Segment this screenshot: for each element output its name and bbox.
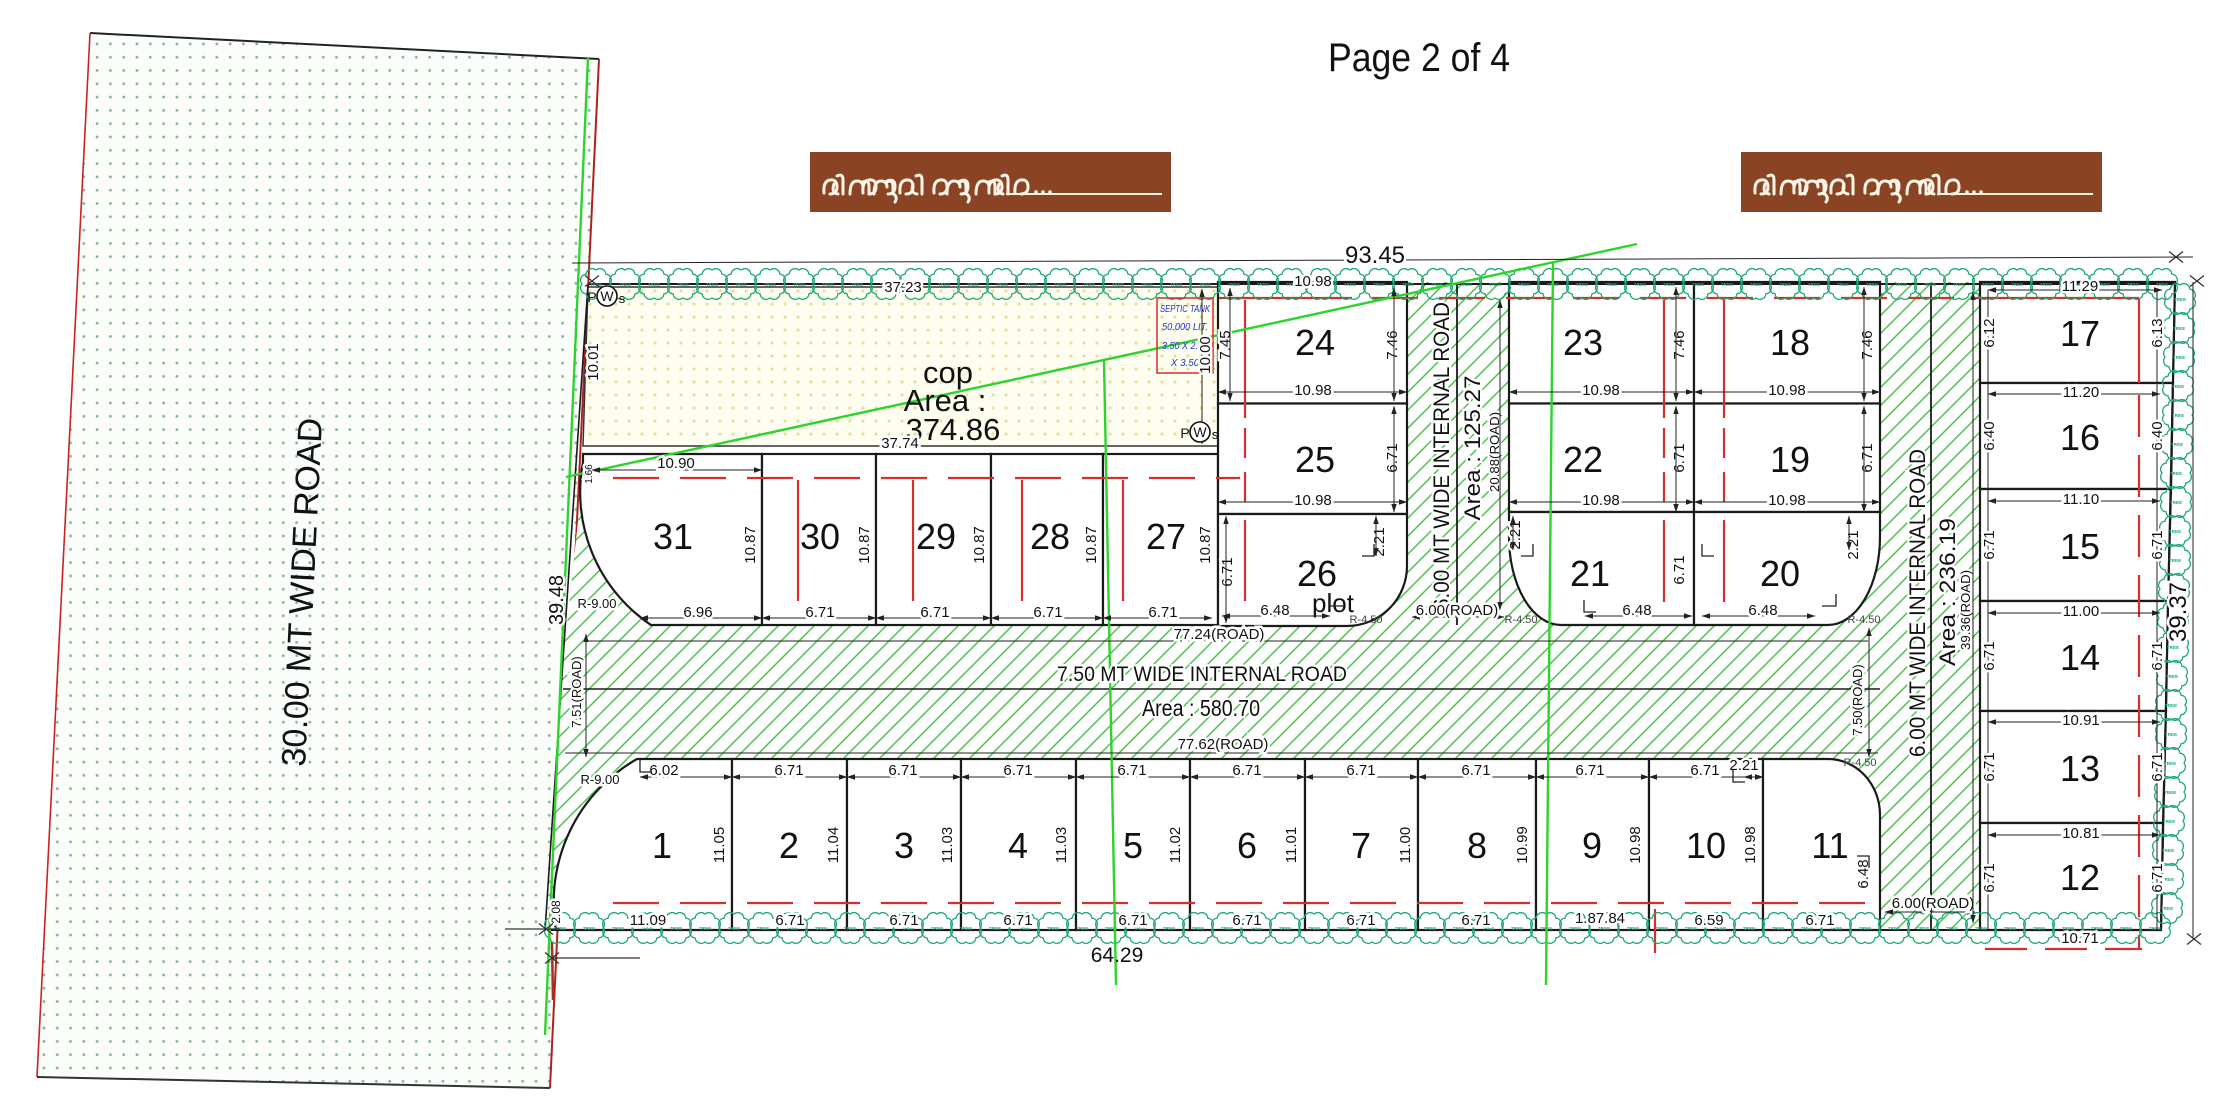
svg-text:28: 28: [1030, 516, 1070, 557]
svg-text:11.03: 11.03: [1053, 827, 1070, 863]
svg-text:11: 11: [1811, 825, 1848, 866]
svg-text:6.71: 6.71: [2149, 530, 2166, 559]
svg-text:R-9.00: R-9.00: [577, 596, 616, 611]
svg-text:W: W: [600, 288, 614, 304]
svg-text:20: 20: [1760, 553, 1800, 594]
svg-text:s: s: [619, 291, 626, 306]
svg-text:10.98: 10.98: [1768, 382, 1806, 399]
svg-text:6.71: 6.71: [1981, 530, 1998, 559]
svg-text:Area : 236.19: Area : 236.19: [1935, 518, 1960, 666]
svg-text:Area : 580.70: Area : 580.70: [1142, 695, 1260, 721]
svg-text:6.00 MT WIDE INTERNAL ROAD: 6.00 MT WIDE INTERNAL ROAD: [1905, 449, 1930, 757]
svg-text:11.20: 11.20: [2063, 384, 2099, 401]
svg-text:6.71: 6.71: [920, 604, 949, 621]
svg-text:6.96: 6.96: [683, 604, 712, 621]
svg-text:6.71: 6.71: [1461, 762, 1490, 779]
svg-text:6.71: 6.71: [775, 912, 804, 929]
svg-text:24: 24: [1295, 322, 1335, 363]
svg-text:Area : 125.27: Area : 125.27: [1460, 376, 1485, 521]
svg-text:R-4.50: R-4.50: [1843, 757, 1876, 769]
svg-text:6.71: 6.71: [1690, 762, 1719, 779]
svg-text:6.48: 6.48: [1260, 602, 1289, 619]
svg-text:2.21: 2.21: [1729, 757, 1758, 774]
svg-text:10.98: 10.98: [1768, 492, 1806, 509]
svg-text:77.62(ROAD): 77.62(ROAD): [1178, 736, 1269, 753]
svg-text:64.29: 64.29: [1091, 944, 1144, 967]
svg-text:10.87: 10.87: [1083, 526, 1100, 564]
svg-text:2: 2: [779, 825, 799, 866]
svg-text:4: 4: [1008, 825, 1028, 866]
svg-text:R-4.50: R-4.50: [1349, 614, 1382, 626]
svg-text:6.00(ROAD): 6.00(ROAD): [1892, 895, 1975, 912]
svg-text:23: 23: [1563, 322, 1603, 363]
svg-text:19: 19: [1770, 439, 1810, 480]
svg-text:Page 2 of 4: Page 2 of 4: [1328, 36, 1510, 80]
svg-text:10.81: 10.81: [2062, 825, 2100, 842]
svg-text:7: 7: [1351, 825, 1371, 866]
svg-text:7.46: 7.46: [1859, 330, 1876, 359]
svg-text:1.66: 1.66: [584, 464, 595, 484]
svg-text:25: 25: [1295, 439, 1335, 480]
svg-text:11.10: 11.10: [2063, 491, 2099, 508]
svg-text:11.03: 11.03: [939, 827, 956, 863]
svg-text:10.91: 10.91: [2062, 712, 2100, 729]
svg-text:1: 1: [652, 825, 672, 866]
svg-text:10.98: 10.98: [1294, 492, 1332, 509]
svg-text:7.50 MT WIDE INTERNAL ROAD: 7.50 MT WIDE INTERNAL ROAD: [1057, 663, 1347, 686]
svg-text:11.05: 11.05: [711, 827, 728, 863]
svg-text:6.48: 6.48: [1622, 602, 1651, 619]
svg-text:11.01: 11.01: [1283, 827, 1300, 863]
svg-text:6.59: 6.59: [1694, 912, 1723, 929]
svg-text:s: s: [1212, 427, 1219, 442]
svg-text:6.02: 6.02: [649, 762, 678, 779]
svg-text:10.01: 10.01: [585, 343, 602, 381]
svg-text:7.51(ROAD): 7.51(ROAD): [569, 656, 584, 728]
svg-text:10.87: 10.87: [971, 526, 988, 564]
svg-text:39.48: 39.48: [546, 575, 568, 625]
svg-text:6: 6: [1237, 825, 1257, 866]
svg-text:6.71: 6.71: [1671, 443, 1688, 472]
svg-text:10.98: 10.98: [1294, 382, 1332, 399]
svg-text:16: 16: [2060, 417, 2100, 458]
svg-text:22: 22: [1563, 439, 1603, 480]
svg-text:6.71: 6.71: [888, 762, 917, 779]
svg-text:2.08: 2.08: [549, 900, 563, 924]
svg-text:18: 18: [1770, 322, 1810, 363]
svg-text:10.71: 10.71: [2061, 930, 2099, 947]
svg-text:1.87.84: 1.87.84: [1575, 910, 1625, 927]
svg-text:6.71: 6.71: [1859, 443, 1876, 472]
svg-text:6.71: 6.71: [1981, 752, 1998, 781]
svg-text:12: 12: [2060, 857, 2100, 898]
svg-text:9: 9: [1582, 825, 1602, 866]
svg-text:7.50(ROAD): 7.50(ROAD): [1850, 664, 1865, 736]
svg-text:10.00: 10.00: [1197, 336, 1214, 374]
svg-text:93.45: 93.45: [1345, 242, 1405, 269]
svg-text:30: 30: [800, 516, 840, 557]
svg-text:29: 29: [916, 516, 956, 557]
svg-text:10.98: 10.98: [1582, 382, 1620, 399]
svg-text:6.00 MT WIDE INTERNAL ROAD: 6.00 MT WIDE INTERNAL ROAD: [1429, 302, 1454, 610]
svg-text:6.71: 6.71: [2149, 863, 2166, 892]
svg-text:10.98: 10.98: [1627, 826, 1644, 864]
svg-text:6.71: 6.71: [1219, 557, 1236, 586]
svg-text:8: 8: [1467, 825, 1487, 866]
svg-text:10.98: 10.98: [1582, 492, 1620, 509]
svg-text:6.71: 6.71: [2149, 752, 2166, 781]
svg-text:6.40: 6.40: [2149, 421, 2166, 450]
svg-text:10.87: 10.87: [742, 526, 759, 564]
svg-text:6.71: 6.71: [889, 912, 918, 929]
svg-text:37.74: 37.74: [881, 435, 919, 452]
svg-text:7.45: 7.45: [1217, 330, 1234, 359]
svg-text:11.00: 11.00: [2063, 603, 2099, 620]
svg-text:6.48: 6.48: [1748, 602, 1777, 619]
svg-text:10.99: 10.99: [1514, 826, 1531, 864]
svg-text:3: 3: [894, 825, 914, 866]
svg-text:11.09: 11.09: [630, 912, 666, 929]
svg-text:10.87: 10.87: [1197, 526, 1214, 564]
svg-text:7.46: 7.46: [1671, 330, 1688, 359]
svg-text:6.71: 6.71: [1384, 443, 1401, 472]
svg-text:R-4.50: R-4.50: [1504, 614, 1537, 626]
svg-text:11.00: 11.00: [1397, 827, 1414, 863]
svg-text:6.13: 6.13: [2149, 318, 2166, 347]
svg-text:10.90: 10.90: [657, 455, 695, 472]
svg-text:6.00(ROAD): 6.00(ROAD): [1416, 602, 1499, 619]
svg-text:21: 21: [1570, 553, 1610, 594]
svg-text:6.71: 6.71: [805, 604, 834, 621]
svg-text:6.71: 6.71: [1575, 762, 1604, 779]
svg-text:2.21: 2.21: [1845, 530, 1862, 559]
svg-text:6.71: 6.71: [1346, 762, 1375, 779]
svg-text:6.12: 6.12: [1981, 318, 1998, 347]
svg-text:P: P: [587, 289, 596, 305]
svg-text:P: P: [1180, 425, 1189, 441]
svg-text:6.71: 6.71: [1346, 912, 1375, 929]
svg-text:R-4.50: R-4.50: [1847, 614, 1880, 626]
svg-text:14: 14: [2060, 637, 2100, 678]
svg-text:plot: plot: [1312, 588, 1355, 618]
svg-text:6.71: 6.71: [1033, 604, 1062, 621]
svg-text:37.23: 37.23: [884, 279, 922, 296]
svg-text:6.71: 6.71: [1232, 912, 1261, 929]
svg-text:6.71: 6.71: [1117, 762, 1146, 779]
svg-text:374.86: 374.86: [906, 412, 1001, 447]
svg-text:6.71: 6.71: [1981, 863, 1998, 892]
svg-text:6.71: 6.71: [1671, 555, 1688, 584]
svg-text:17: 17: [2060, 313, 2100, 354]
svg-text:6.40: 6.40: [1981, 421, 1998, 450]
svg-text:39.36(ROAD): 39.36(ROAD): [1958, 570, 1973, 650]
svg-text:11.29: 11.29: [2062, 278, 2098, 295]
svg-text:6.71: 6.71: [1232, 762, 1261, 779]
svg-text:W: W: [1193, 424, 1207, 440]
svg-text:6.71: 6.71: [774, 762, 803, 779]
svg-text:10: 10: [1686, 825, 1726, 866]
svg-text:SEPTIC TANK: SEPTIC TANK: [1160, 304, 1210, 315]
svg-text:6.71: 6.71: [1003, 762, 1032, 779]
svg-text:6.71: 6.71: [1003, 912, 1032, 929]
svg-text:27: 27: [1146, 516, 1186, 557]
svg-text:31: 31: [653, 516, 693, 557]
svg-text:6.71: 6.71: [1118, 912, 1147, 929]
svg-text:10.87: 10.87: [856, 526, 873, 564]
svg-text:7.46: 7.46: [1384, 330, 1401, 359]
svg-text:77.24(ROAD): 77.24(ROAD): [1174, 626, 1265, 643]
svg-text:2.21: 2.21: [1507, 520, 1524, 549]
svg-text:50.000 LIT.: 50.000 LIT.: [1162, 322, 1208, 333]
svg-text:6.71: 6.71: [1805, 912, 1834, 929]
svg-text:R-9.00: R-9.00: [580, 772, 619, 787]
svg-text:6.71: 6.71: [1981, 641, 1998, 670]
svg-text:15: 15: [2060, 526, 2100, 567]
svg-text:6.71: 6.71: [1148, 604, 1177, 621]
svg-text:13: 13: [2060, 748, 2100, 789]
svg-text:6.71: 6.71: [2149, 641, 2166, 670]
svg-text:11.02: 11.02: [1167, 827, 1184, 863]
svg-text:X 3.50: X 3.50: [1170, 358, 1200, 369]
svg-text:6.71: 6.71: [1461, 912, 1490, 929]
svg-text:10.98: 10.98: [1742, 826, 1759, 864]
svg-text:5: 5: [1123, 825, 1143, 866]
svg-text:11.04: 11.04: [825, 827, 842, 863]
svg-text:10.98: 10.98: [1294, 273, 1332, 290]
svg-text:39.37: 39.37: [2165, 582, 2192, 642]
